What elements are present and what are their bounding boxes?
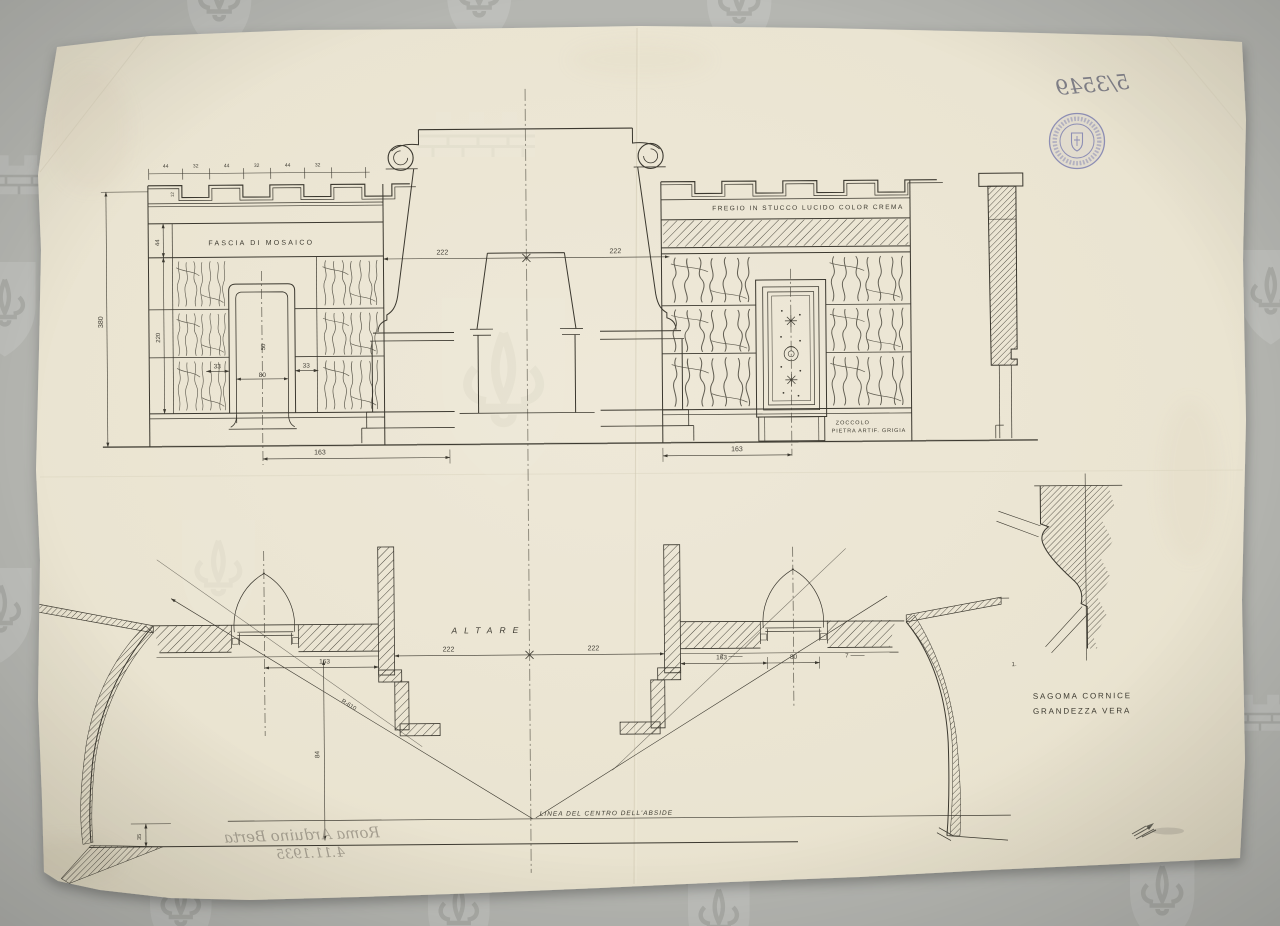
scanned-drawing-sheet: FASCIA DI MOSAICO 44 32	[0, 0, 1280, 926]
photo-vignette	[0, 0, 1280, 926]
